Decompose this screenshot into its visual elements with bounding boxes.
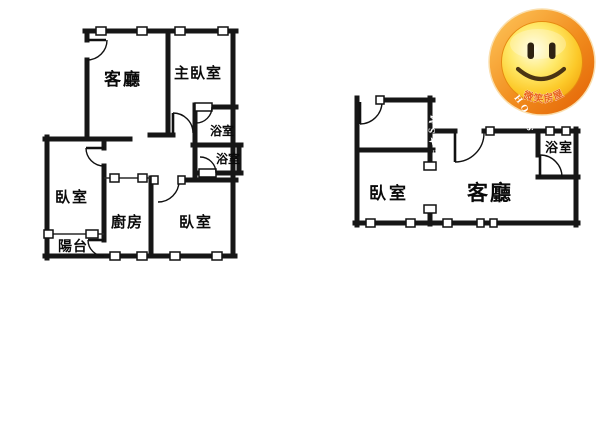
window-symbol: [170, 252, 180, 260]
face-gloss: [510, 29, 566, 59]
smile-house-badge: HOUSE★SMILE★HOUSE★SMILE 微笑房屋: [427, 9, 595, 185]
left-plan-labels: 客廳 主臥室 浴室 浴室 臥室 廚房 臥室 陽台: [55, 64, 240, 255]
window-symbol: [406, 219, 415, 227]
badge-ring-text: HOUSE★SMILE★HOUSE★SMILE: [427, 88, 534, 185]
label-bedroom: 臥室: [369, 183, 409, 203]
door-symbol-bath-upper: [195, 103, 212, 123]
opening-post: [151, 176, 158, 184]
window-symbol: [96, 27, 106, 35]
label-bathroom: 浴室: [545, 140, 573, 155]
right-plan-walls: [355, 98, 578, 225]
window-symbol: [486, 127, 494, 135]
floorplan-canvas: 客廳 主臥室 浴室 浴室 臥室 廚房 臥室 陽台: [0, 0, 600, 425]
window-symbol: [175, 27, 185, 35]
label-living-room: 客廳: [467, 181, 513, 205]
opening-post: [44, 230, 53, 238]
label-bedroom-bottom: 臥室: [179, 213, 213, 231]
door-symbol-entry: [87, 40, 107, 60]
window-symbol: [137, 27, 147, 35]
door-symbol-bath-lower: [199, 157, 216, 177]
wall-end-cap: [424, 205, 436, 213]
opening-post: [376, 96, 384, 104]
opening-post: [178, 176, 185, 184]
label-bathroom-lower: 浴室: [216, 151, 240, 166]
door-symbol-bedroom-left: [86, 148, 104, 166]
window-symbol: [477, 219, 484, 227]
opening-post: [86, 230, 98, 238]
window-symbol: [212, 252, 222, 260]
left-floor-plan: 客廳 主臥室 浴室 浴室 臥室 廚房 臥室 陽台: [44, 27, 241, 260]
window-symbol: [490, 219, 497, 227]
floorplan-image: 客廳 主臥室 浴室 浴室 臥室 廚房 臥室 陽台: [0, 0, 600, 425]
window-symbol: [443, 219, 452, 227]
window-symbol: [137, 252, 147, 260]
label-balcony: 陽台: [58, 238, 88, 255]
label-master-bedroom: 主臥室: [174, 64, 222, 82]
eye-left-icon: [528, 43, 535, 60]
label-bathroom-upper: 浴室: [210, 123, 234, 138]
window-symbol: [546, 127, 554, 135]
window-symbol: [218, 27, 228, 35]
wall-end-cap: [424, 162, 436, 170]
window-symbol: [110, 252, 120, 260]
door-symbol-room-top-left: [360, 102, 382, 124]
door-symbol-bathroom: [540, 155, 562, 177]
label-bedroom-left: 臥室: [55, 188, 89, 206]
eye-right-icon: [549, 43, 556, 60]
door-symbol-bedroom-bottom: [158, 181, 179, 202]
opening-post: [110, 174, 119, 182]
window-symbol: [562, 127, 570, 135]
window-symbol: [366, 219, 375, 227]
opening-post: [138, 174, 147, 182]
label-living-room: 客廳: [103, 69, 142, 89]
label-kitchen: 廚房: [111, 213, 143, 231]
door-symbol-living-room: [455, 133, 484, 162]
door-symbol-master-bedroom: [173, 113, 193, 133]
